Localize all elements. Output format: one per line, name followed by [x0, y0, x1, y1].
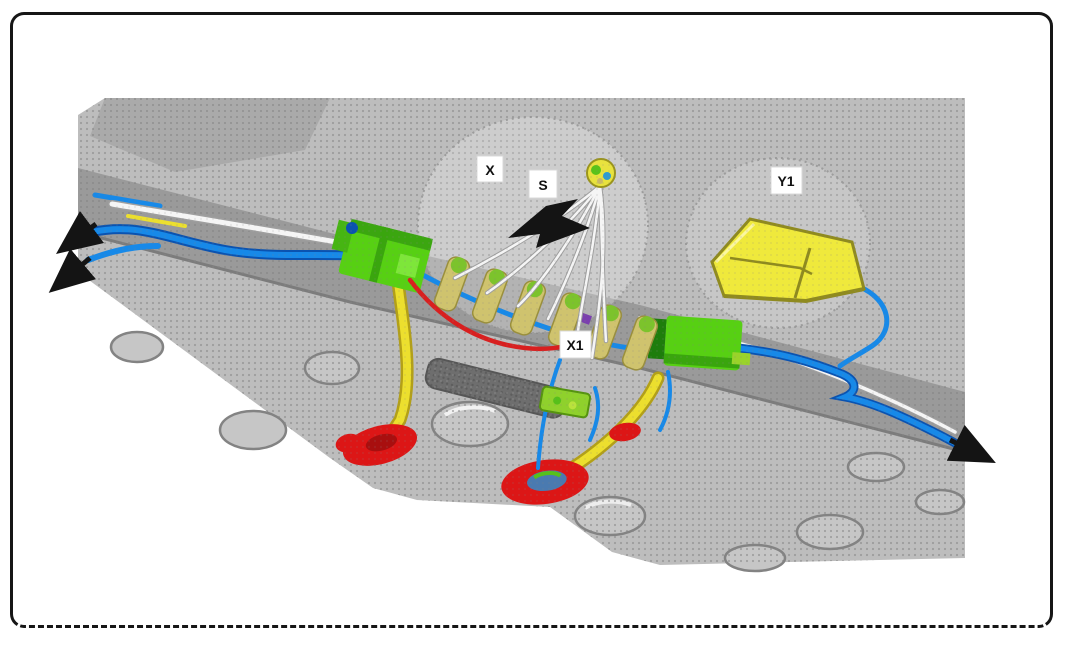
label-connector-x1: X1: [560, 331, 591, 358]
label-detail-s-text: S: [538, 177, 547, 193]
wiring-harness-illustration: X S X1 Y1: [0, 0, 1067, 648]
label-detail-x: X: [477, 156, 503, 182]
label-connector-x1-text: X1: [566, 337, 583, 353]
label-detail-x-text: X: [485, 162, 495, 178]
label-component-y1: Y1: [771, 167, 802, 194]
halftone-overlay: [0, 0, 1067, 648]
label-component-y1-text: Y1: [777, 173, 794, 189]
label-detail-s: S: [529, 170, 557, 198]
